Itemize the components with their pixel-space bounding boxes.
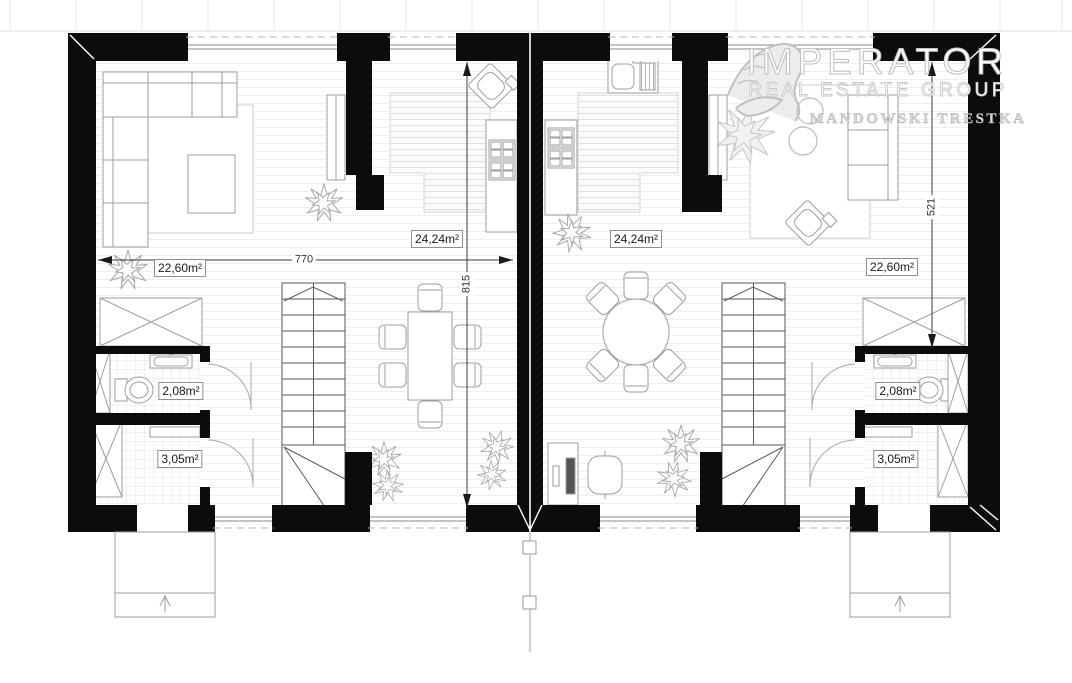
floor-plan-canvas: IMPERATOR REAL ESTATE GROUP MANDOWSKI TR…	[0, 0, 1072, 683]
wall-stub-left	[346, 33, 372, 175]
cooktop-right	[545, 120, 577, 215]
area-label-right-living: 22,60m²	[866, 258, 918, 276]
floor-plan-drawing: IMPERATOR REAL ESTATE GROUP MANDOWSKI TR…	[0, 0, 1072, 683]
window-top-left-small	[388, 33, 458, 61]
stairs-left	[282, 283, 345, 510]
wardrobe-right	[863, 298, 965, 346]
coffee-table-left	[188, 155, 235, 213]
shaft-right-1	[948, 350, 968, 413]
office-chair-right	[588, 451, 622, 499]
porch-left	[115, 532, 215, 617]
logo-brand: IMPERATOR	[746, 41, 1008, 82]
window-bottom-right-desk	[598, 505, 698, 532]
bath-shelf-left	[150, 427, 200, 437]
toilet-right	[915, 377, 953, 403]
wall-stub-right	[682, 33, 708, 175]
stairs-right	[722, 283, 785, 510]
dim-label-521: 521	[926, 195, 939, 219]
boundary-fence	[523, 532, 536, 652]
dim-label-770: 770	[292, 254, 316, 267]
area-label-right-toilet: 2,08m²	[875, 382, 920, 400]
sideboard-right	[709, 95, 727, 180]
window-top-left-large	[186, 33, 339, 61]
wardrobe-left	[100, 298, 202, 346]
bath-shelf-right	[862, 427, 912, 437]
toilet-left	[115, 377, 153, 403]
area-label-right-kitchen: 24,24m²	[610, 230, 662, 248]
cooktop-left	[486, 120, 517, 232]
kitchen-sink-right	[608, 59, 658, 93]
logo-subtitle: REAL ESTATE GROUP	[748, 80, 1008, 101]
window-top-right-kitchen	[608, 33, 674, 61]
window-bottom-right-hall	[798, 505, 852, 532]
window-bottom-left-dining	[368, 505, 468, 532]
area-label-left-bathroom: 3,05m²	[157, 450, 202, 468]
desk-right	[548, 443, 578, 505]
window-bottom-left-hall	[213, 505, 274, 532]
site-grid	[0, 0, 1072, 31]
shaft-right-2	[938, 420, 968, 497]
area-label-left-kitchen: 24,24m²	[411, 230, 463, 248]
porch-right	[850, 532, 950, 617]
area-label-left-toilet: 2,08m²	[158, 382, 203, 400]
dim-label-815: 815	[461, 272, 474, 296]
area-label-right-bathroom: 3,05m²	[873, 450, 918, 468]
sideboard-left	[327, 95, 345, 180]
logo-names: MANDOWSKI TRESTKA	[810, 111, 1027, 127]
area-label-left-living: 22,60m²	[154, 259, 206, 277]
